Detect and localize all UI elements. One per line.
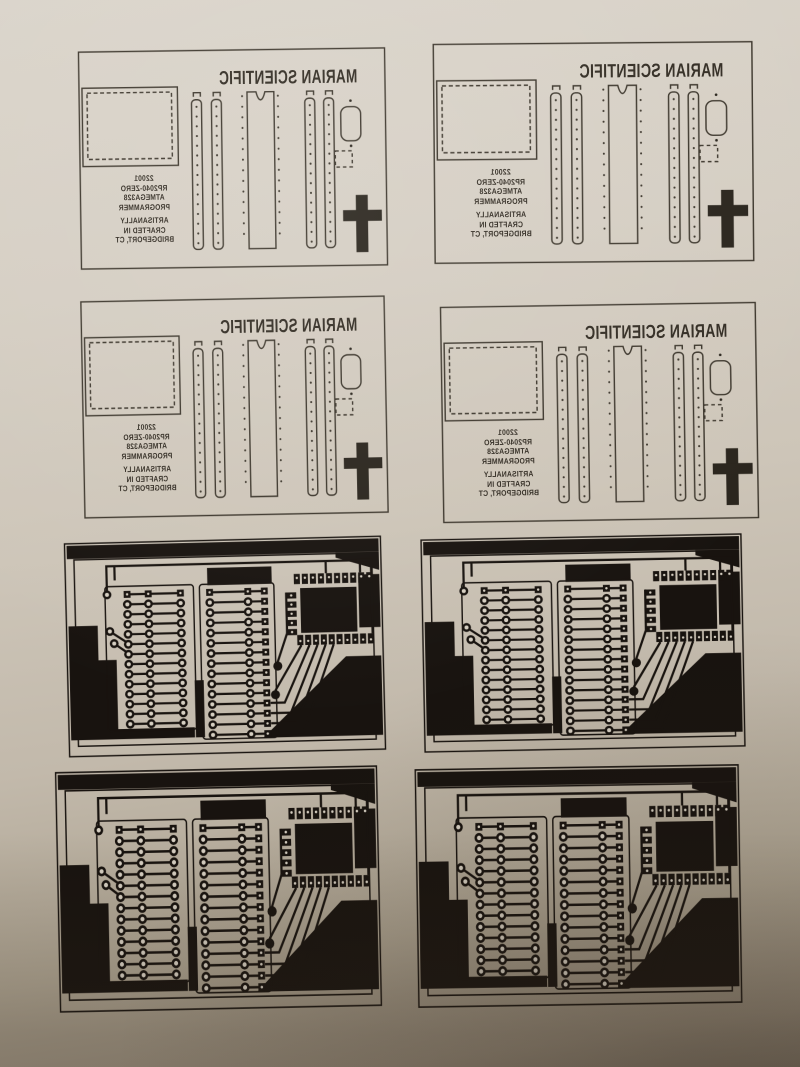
trace-line bbox=[481, 937, 535, 938]
pad-ring bbox=[499, 945, 506, 952]
trace-line bbox=[129, 653, 182, 654]
pad-ring bbox=[207, 630, 214, 637]
pad-ring bbox=[146, 630, 153, 637]
trace-line bbox=[203, 827, 258, 828]
row-group-middle bbox=[206, 587, 271, 738]
pad-ring bbox=[504, 666, 511, 673]
pad-ring bbox=[482, 647, 489, 654]
part-number-block: 22001 RP2040-ZERO ATMEGA328 PROGRAMMER bbox=[455, 167, 546, 206]
copper-print-4 bbox=[412, 761, 745, 1010]
trace-line bbox=[479, 837, 533, 838]
jumper-pad-outline bbox=[700, 145, 718, 161]
trace-line bbox=[480, 893, 534, 894]
module-body bbox=[659, 584, 717, 630]
pad-ring bbox=[483, 687, 490, 694]
pad-ring bbox=[499, 923, 506, 930]
pad-ring bbox=[179, 650, 186, 657]
pad-ring bbox=[173, 948, 180, 955]
pad-ring bbox=[561, 924, 568, 931]
pad-ring bbox=[177, 600, 184, 607]
pad-ring bbox=[565, 616, 572, 623]
filled-round-pad bbox=[265, 938, 274, 948]
pad-ring bbox=[171, 870, 178, 877]
photo-paper-sheet: MARIAN SCIENTIFIC 22001 RP2040-ZERO ATME… bbox=[0, 0, 800, 1067]
pin-header-outline-left-pair bbox=[193, 341, 226, 498]
trace-line bbox=[485, 629, 539, 630]
pad-ring bbox=[240, 892, 247, 899]
pad-ring bbox=[126, 671, 133, 678]
pad-ring bbox=[476, 834, 483, 841]
silkscreen-print-2: MARIAN SCIENTIFIC 22001 RP2040-ZERO ATME… bbox=[427, 36, 760, 270]
pad-ring bbox=[476, 879, 483, 886]
part-line: PROGRAMMER bbox=[104, 450, 190, 461]
silkscreen-print-1: MARIAN SCIENTIFIC 22001 RP2040-ZERO ATME… bbox=[72, 42, 393, 275]
pad-ring bbox=[209, 681, 216, 688]
filled-round-pad bbox=[271, 690, 280, 699]
pad-ring bbox=[201, 870, 208, 877]
trace-line bbox=[564, 847, 620, 848]
copper-board bbox=[61, 533, 388, 760]
pad-ring bbox=[178, 610, 185, 617]
pad-ring bbox=[567, 718, 574, 725]
pad-ring bbox=[173, 971, 180, 978]
pad-ring bbox=[560, 845, 567, 852]
pad-ring bbox=[455, 823, 462, 830]
pad-ring bbox=[246, 629, 253, 636]
pad-ring bbox=[146, 650, 153, 657]
trace-line bbox=[486, 669, 540, 670]
filled-round-pad bbox=[632, 658, 641, 667]
copper-board bbox=[418, 531, 748, 755]
pad-ring bbox=[172, 903, 179, 910]
trace-line bbox=[566, 984, 622, 985]
pad-ring bbox=[535, 616, 542, 623]
pad-ring bbox=[532, 967, 539, 974]
pad-ring bbox=[503, 637, 510, 644]
cross-mark-icon bbox=[343, 442, 382, 500]
pad-ring bbox=[241, 961, 248, 968]
pad-ring bbox=[203, 973, 210, 980]
trace-line bbox=[211, 632, 265, 633]
trace-line bbox=[128, 633, 181, 634]
pad-ring bbox=[498, 856, 505, 863]
pad-ring bbox=[504, 696, 511, 703]
pad-ring bbox=[126, 681, 133, 688]
pad-ring bbox=[202, 939, 209, 946]
pad-ring bbox=[140, 971, 147, 978]
trace-line bbox=[128, 643, 181, 644]
pad-ring bbox=[148, 720, 155, 727]
dip-socket-outline bbox=[603, 85, 642, 243]
filled-round-pad bbox=[628, 903, 637, 913]
trace-line bbox=[120, 874, 174, 875]
copper-artwork bbox=[412, 761, 745, 1010]
silkscreen-board: MARIAN SCIENTIFIC 22001 RP2040-ZERO ATME… bbox=[427, 36, 760, 270]
pad-ring bbox=[604, 646, 611, 653]
resistor-outline bbox=[341, 347, 362, 395]
pad-ring bbox=[147, 670, 154, 677]
trace-line bbox=[128, 613, 181, 614]
trace-line bbox=[485, 639, 539, 640]
trace-line bbox=[205, 907, 260, 908]
pad-ring bbox=[483, 707, 490, 714]
pad-ring bbox=[606, 717, 613, 724]
trace-line bbox=[568, 618, 623, 619]
trace-line bbox=[212, 693, 266, 694]
pad-ring bbox=[147, 680, 154, 687]
trace-line bbox=[206, 987, 261, 988]
pad-ring bbox=[535, 606, 542, 613]
pad-ring bbox=[119, 972, 126, 979]
trace-line bbox=[128, 623, 181, 624]
trace-line bbox=[205, 930, 260, 931]
pad-ring bbox=[248, 720, 255, 727]
pad-ring bbox=[172, 926, 179, 933]
pin-header-outline-right-pair bbox=[673, 345, 705, 501]
crafted-block: ARTISANALLY CRAFTED IN BRIDGEPORT, CT bbox=[101, 215, 188, 245]
pad-ring bbox=[148, 700, 155, 707]
module-footprint-outline bbox=[444, 342, 543, 421]
pad-ring bbox=[601, 946, 608, 953]
pad-ring bbox=[600, 878, 607, 885]
silkscreen-print-4: MARIAN SCIENTIFIC 22001 RP2040-ZERO ATME… bbox=[434, 296, 765, 528]
pad-ring bbox=[531, 878, 538, 885]
trace-line bbox=[564, 904, 620, 905]
silkscreen-board: MARIAN SCIENTIFIC 22001 RP2040-ZERO ATME… bbox=[75, 290, 394, 524]
pad-ring bbox=[172, 937, 179, 944]
pin1-hook-icon bbox=[695, 345, 702, 349]
crafted-block: ARTISANALLY CRAFTED IN BRIDGEPORT, CT bbox=[104, 464, 191, 494]
pad-ring bbox=[210, 732, 217, 739]
trace-line bbox=[565, 938, 621, 939]
trace-line bbox=[211, 662, 265, 663]
pad-ring bbox=[202, 962, 209, 969]
silkscreen-board: MARIAN SCIENTIFIC 22001 RP2040-ZERO ATME… bbox=[434, 296, 765, 528]
pad-ring bbox=[118, 927, 125, 934]
pad-ring bbox=[118, 949, 125, 956]
pad-ring bbox=[476, 868, 483, 875]
pad-ring bbox=[118, 938, 125, 945]
row-group-left bbox=[124, 590, 187, 728]
pad-ring bbox=[532, 934, 539, 941]
pad-ring bbox=[482, 657, 489, 664]
trace-line bbox=[564, 893, 620, 894]
crafted-line: BRIDGEPORT, CT bbox=[101, 234, 188, 245]
trace-line bbox=[485, 649, 539, 650]
pad-ring bbox=[565, 596, 572, 603]
board-title-mirrored: MARIAN SCIENTIFIC bbox=[586, 60, 723, 83]
jumper-pad-outline bbox=[336, 399, 353, 415]
pad-ring bbox=[460, 588, 467, 595]
pad-ring bbox=[566, 657, 573, 664]
trace-line bbox=[213, 713, 267, 714]
pad-ring bbox=[117, 871, 124, 878]
pad-ring bbox=[242, 972, 249, 979]
jumper-pad-outline bbox=[335, 151, 352, 167]
trace-line bbox=[570, 730, 625, 731]
trace-line bbox=[130, 693, 183, 694]
pin1-hook-icon bbox=[559, 347, 566, 351]
board-title-mirrored: MARIAN SCIENTIFIC bbox=[592, 321, 728, 345]
pad-ring bbox=[119, 961, 126, 968]
pin-header-outline-right-pair bbox=[305, 91, 336, 248]
pad-ring bbox=[505, 706, 512, 713]
pad-ring bbox=[499, 956, 506, 963]
pad-ring bbox=[241, 949, 248, 956]
trace-line bbox=[119, 840, 173, 841]
copper-print-1 bbox=[61, 533, 388, 760]
pad-ring bbox=[567, 728, 574, 735]
pad-ring bbox=[240, 881, 247, 888]
pad-ring bbox=[537, 686, 544, 693]
pad-ring bbox=[240, 915, 247, 922]
pad-ring bbox=[601, 969, 608, 976]
pad-ring bbox=[127, 721, 134, 728]
trace-line bbox=[210, 611, 264, 612]
pad-ring bbox=[530, 833, 537, 840]
trace-line bbox=[121, 896, 175, 897]
copper-artwork bbox=[61, 533, 388, 760]
pad-ring bbox=[209, 701, 216, 708]
trace-line bbox=[486, 699, 540, 700]
pin1-hook-icon bbox=[325, 91, 332, 95]
trace-line bbox=[129, 683, 182, 684]
trace-line bbox=[122, 974, 176, 975]
crafted-block: ARTISANALLY CRAFTED IN BRIDGEPORT, CT bbox=[464, 469, 554, 499]
part-line: PROGRAMMER bbox=[456, 196, 546, 206]
module-body bbox=[300, 587, 357, 633]
pad-ring bbox=[476, 857, 483, 864]
trace-line bbox=[485, 609, 539, 610]
trace-line bbox=[481, 959, 535, 960]
pad-ring bbox=[116, 837, 123, 844]
pad-ring bbox=[171, 892, 178, 899]
trace-line bbox=[569, 659, 624, 660]
pad-ring bbox=[567, 707, 574, 714]
part-number-block: 22001 RP2040-ZERO ATMEGA328 PROGRAMMER bbox=[100, 173, 187, 212]
pad-ring bbox=[247, 700, 254, 707]
copper-board bbox=[52, 763, 384, 1016]
pad-ring bbox=[248, 731, 255, 738]
trace-line bbox=[129, 663, 182, 664]
trace-line bbox=[570, 689, 625, 690]
pad-ring bbox=[117, 882, 124, 889]
pad-ring bbox=[477, 945, 484, 952]
trace-line bbox=[121, 918, 175, 919]
pad-ring bbox=[171, 859, 178, 866]
pad-ring bbox=[138, 848, 145, 855]
trace-line bbox=[565, 961, 621, 962]
trace-line bbox=[479, 859, 533, 860]
pad-ring bbox=[179, 670, 186, 677]
pad-ring bbox=[536, 656, 543, 663]
trace-line bbox=[211, 652, 265, 653]
trace-line bbox=[565, 949, 621, 950]
pad-ring bbox=[209, 691, 216, 698]
pad-ring bbox=[116, 860, 123, 867]
pad-ring bbox=[147, 690, 154, 697]
pad-ring bbox=[200, 859, 207, 866]
trace-line bbox=[121, 941, 175, 942]
copper-print-2 bbox=[418, 531, 748, 755]
top-pour-rect bbox=[561, 797, 627, 817]
pad-ring bbox=[240, 904, 247, 911]
pad-ring bbox=[481, 617, 488, 624]
pin-header-outline-left-pair bbox=[191, 92, 223, 249]
trace-line bbox=[130, 723, 183, 724]
pad-ring bbox=[532, 956, 539, 963]
pad-ring bbox=[536, 646, 543, 653]
pad-ring bbox=[178, 630, 185, 637]
pad-ring bbox=[126, 661, 133, 668]
pad-ring bbox=[537, 696, 544, 703]
pad-ring bbox=[247, 670, 254, 677]
pad-ring bbox=[565, 636, 572, 643]
trace-line bbox=[486, 679, 540, 680]
pad-ring bbox=[600, 867, 607, 874]
pad-ring bbox=[246, 639, 253, 646]
trace-line bbox=[479, 848, 533, 849]
trace-line bbox=[565, 927, 621, 928]
pad-ring bbox=[503, 617, 510, 624]
pin1-hook-icon bbox=[195, 342, 202, 346]
trace-line bbox=[564, 870, 620, 871]
pad-ring bbox=[208, 640, 215, 647]
pad-ring bbox=[477, 890, 484, 897]
pad-ring bbox=[531, 889, 538, 896]
pad-ring bbox=[246, 649, 253, 656]
trace-line bbox=[564, 881, 620, 882]
crafted-line: BRIDGEPORT, CT bbox=[456, 229, 546, 239]
pad-ring bbox=[245, 598, 252, 605]
pad-ring bbox=[562, 947, 569, 954]
pad-ring bbox=[203, 985, 210, 992]
trace-line bbox=[568, 598, 623, 599]
pad-ring bbox=[117, 893, 124, 900]
pad-ring bbox=[173, 960, 180, 967]
pad-ring bbox=[146, 640, 153, 647]
trace-line bbox=[204, 861, 259, 862]
pad-ring bbox=[180, 709, 187, 716]
trace-line bbox=[564, 859, 620, 860]
pad-ring bbox=[530, 845, 537, 852]
pin1-hook-icon bbox=[326, 339, 333, 343]
pad-ring bbox=[200, 847, 207, 854]
pad-ring bbox=[532, 922, 539, 929]
pad-ring bbox=[599, 855, 606, 862]
pad-ring bbox=[599, 833, 606, 840]
pad-ring bbox=[481, 597, 488, 604]
pin1-hook-icon bbox=[675, 345, 682, 349]
pad-ring bbox=[139, 927, 146, 934]
trace-line bbox=[480, 870, 534, 871]
pad-ring bbox=[117, 905, 124, 912]
pad-ring bbox=[561, 913, 568, 920]
pad-ring bbox=[138, 882, 145, 889]
trace-line bbox=[569, 649, 624, 650]
pad-ring bbox=[477, 912, 484, 919]
pad-ring bbox=[246, 659, 253, 666]
pad-ring bbox=[536, 626, 543, 633]
trace-line bbox=[127, 603, 180, 604]
pad-ring bbox=[179, 680, 186, 687]
pad-ring bbox=[476, 845, 483, 852]
pad-ring bbox=[180, 690, 187, 697]
crafted-block: ARTISANALLY CRAFTED IN BRIDGEPORT, CT bbox=[456, 210, 547, 240]
pad-ring bbox=[498, 912, 505, 919]
filled-round-pad bbox=[267, 906, 276, 916]
pad-ring bbox=[180, 700, 187, 707]
pad-ring bbox=[566, 687, 573, 694]
pin1-hook-icon bbox=[193, 93, 200, 97]
pad-ring bbox=[531, 911, 538, 918]
pad-ring bbox=[531, 856, 538, 863]
pad-ring bbox=[503, 647, 510, 654]
dip-socket-outline bbox=[609, 346, 648, 502]
pad-ring bbox=[171, 881, 178, 888]
trace-line bbox=[210, 591, 264, 592]
pad-ring bbox=[148, 710, 155, 717]
part-line: PROGRAMMER bbox=[101, 202, 188, 213]
pin1-hook-icon bbox=[670, 85, 677, 89]
trace-line bbox=[120, 862, 174, 863]
pad-ring bbox=[179, 660, 186, 667]
pad-ring bbox=[247, 710, 254, 717]
pad-ring bbox=[241, 938, 248, 945]
pad-ring bbox=[247, 690, 254, 697]
pad-ring bbox=[504, 676, 511, 683]
row-group-middle bbox=[199, 823, 265, 992]
pad-ring bbox=[477, 901, 484, 908]
pad-ring bbox=[140, 949, 147, 956]
cross-mark-icon bbox=[708, 190, 749, 248]
trace-line bbox=[486, 689, 540, 690]
pad-ring bbox=[600, 923, 607, 930]
filled-round-pad bbox=[625, 935, 634, 945]
trace-line bbox=[484, 600, 538, 601]
pad-ring bbox=[505, 716, 512, 723]
pad-ring bbox=[125, 651, 132, 658]
pad-ring bbox=[536, 636, 543, 643]
copper-artwork bbox=[52, 763, 384, 1016]
pad-ring bbox=[567, 697, 574, 704]
pad-ring bbox=[478, 968, 485, 975]
trace-line bbox=[570, 699, 625, 700]
jumper-pad-outline bbox=[705, 405, 723, 421]
trace-line bbox=[204, 884, 259, 885]
board-title-mirrored: MARIAN SCIENTIFIC bbox=[226, 66, 358, 90]
pad-ring bbox=[207, 620, 214, 627]
trace-line bbox=[206, 976, 261, 977]
pad-ring bbox=[477, 934, 484, 941]
pin1-hook-icon bbox=[579, 347, 586, 351]
trace-line bbox=[205, 918, 260, 919]
trace-line bbox=[569, 679, 624, 680]
pad-ring bbox=[560, 833, 567, 840]
pad-ring bbox=[561, 879, 568, 886]
pad-ring bbox=[603, 595, 610, 602]
pad-ring bbox=[499, 934, 506, 941]
pad-ring bbox=[504, 656, 511, 663]
trace-line bbox=[480, 915, 534, 916]
board-title-mirrored: MARIAN SCIENTIFIC bbox=[227, 315, 358, 339]
pad-ring bbox=[126, 701, 133, 708]
pin1-hook-icon bbox=[553, 86, 560, 90]
pad-ring bbox=[172, 915, 179, 922]
trace-line bbox=[570, 710, 625, 711]
pin1-hook-icon bbox=[307, 339, 314, 343]
trace-line bbox=[484, 590, 538, 591]
